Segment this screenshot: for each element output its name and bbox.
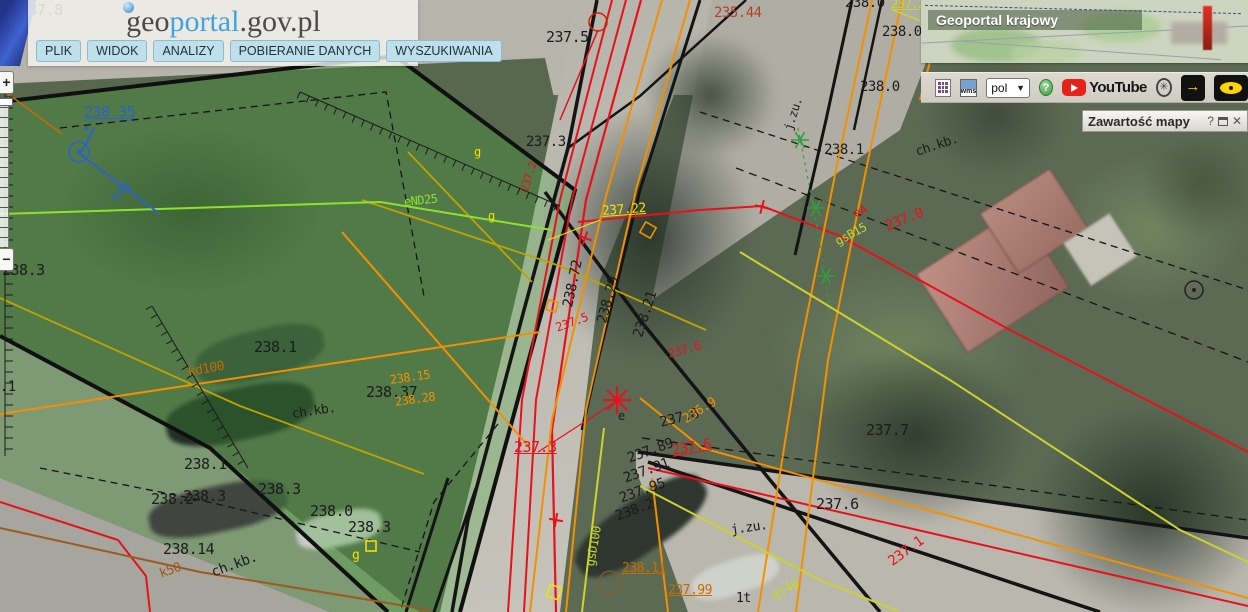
overview-minimap[interactable]: Geoportal krajowy bbox=[921, 0, 1248, 63]
menu-analizy[interactable]: ANALIZY bbox=[153, 40, 223, 62]
minimap-position-marker bbox=[1203, 6, 1212, 50]
menu-wyszukiwania[interactable]: WYSZUKIWANIA bbox=[386, 40, 501, 62]
map-label: 238.11 bbox=[622, 562, 666, 575]
pointer-tool-button[interactable]: → bbox=[1181, 75, 1205, 101]
map-label: 237.3 bbox=[526, 135, 566, 149]
zoom-in-button[interactable]: + bbox=[0, 71, 14, 94]
map-label: ch.kb. bbox=[291, 402, 336, 421]
map-label: 238.28 bbox=[394, 390, 436, 408]
map-label: ch.kb. bbox=[210, 550, 259, 579]
map-label: k50 bbox=[158, 561, 183, 581]
map-label: 237.5 bbox=[546, 30, 589, 45]
wms-button[interactable]: wms bbox=[960, 79, 978, 97]
minimap-title: Geoportal krajowy bbox=[928, 10, 1142, 30]
map-label: 1t bbox=[736, 592, 751, 605]
panel-help-icon[interactable]: ? bbox=[1207, 115, 1214, 127]
eye-pupil bbox=[1227, 84, 1235, 92]
geoportal-map-view: 237.8237.5235.44238.0237.27238.0238.0238… bbox=[0, 0, 1248, 612]
map-label: 238.3 bbox=[348, 520, 391, 535]
youtube-label: YouTube bbox=[1089, 79, 1147, 96]
map-label: ch.kb. bbox=[914, 133, 960, 159]
panel-maximize-icon[interactable] bbox=[1218, 117, 1228, 126]
map-label: 237.6 bbox=[671, 437, 712, 458]
language-select[interactable]: pol▼ bbox=[986, 78, 1030, 98]
map-label: 237.7 bbox=[866, 423, 909, 438]
logo-text-portal: portal bbox=[169, 5, 239, 38]
map-label: 235.44 bbox=[714, 6, 762, 20]
map-label: 238.0 bbox=[860, 80, 900, 94]
map-label: 238.29 bbox=[595, 275, 621, 325]
map-label: 237.3 bbox=[514, 440, 557, 455]
map-label: g bbox=[488, 210, 495, 222]
map-label: gsB15 bbox=[833, 221, 868, 247]
minimap-city bbox=[1171, 22, 1227, 44]
map-label: eA bbox=[852, 203, 869, 219]
map-label: 238.72 bbox=[561, 259, 585, 308]
map-label: 237.2 bbox=[519, 161, 539, 194]
menu-pobieranie-danych[interactable]: POBIERANIE DANYCH bbox=[230, 40, 381, 62]
map-label: 238.3 bbox=[183, 489, 226, 504]
map-label: kd100 bbox=[187, 360, 225, 379]
map-label: 237.6 bbox=[666, 340, 702, 360]
language-selected: pol bbox=[991, 81, 1007, 95]
map-label: gsD100 bbox=[584, 525, 603, 567]
map-label: 236.9 bbox=[681, 396, 719, 426]
map-label: 238.1 bbox=[254, 340, 297, 355]
map-label: 237.0 bbox=[883, 206, 925, 234]
menu-widok[interactable]: WIDOK bbox=[87, 40, 147, 62]
map-label: g bbox=[352, 549, 359, 562]
map-toolbar: wms pol▼ ? YouTube ✳ → bbox=[921, 72, 1248, 103]
main-menu: PLIKWIDOKANALIZYPOBIERANIE DANYCHWYSZUKI… bbox=[36, 40, 502, 62]
visibility-tool-button[interactable] bbox=[1214, 75, 1248, 101]
map-label: w40 bbox=[108, 180, 133, 203]
panel-title: Zawartość mapy bbox=[1088, 114, 1203, 129]
map-label: 238.3 bbox=[258, 482, 301, 497]
map-label: 238.1 bbox=[184, 457, 227, 472]
wheel-icon-button[interactable]: ✳ bbox=[1156, 78, 1172, 97]
map-label: 238.0 bbox=[310, 504, 353, 519]
map-label: 238.0 bbox=[845, 0, 885, 10]
menu-plik[interactable]: PLIK bbox=[36, 40, 81, 62]
youtube-play-icon bbox=[1062, 79, 1086, 96]
map-label: 237.1 bbox=[886, 534, 926, 569]
map-label: 237.6 bbox=[816, 497, 859, 512]
map-contents-panel-header[interactable]: Zawartość mapy ? ✕ bbox=[1082, 110, 1248, 132]
chevron-down-icon: ▼ bbox=[1016, 83, 1025, 93]
map-label: 238.1 bbox=[824, 143, 864, 157]
youtube-link[interactable]: YouTube bbox=[1062, 79, 1147, 96]
zoom-out-button[interactable]: − bbox=[0, 248, 14, 271]
map-label: 237.5 bbox=[554, 311, 590, 334]
map-label: j.zu. bbox=[730, 519, 768, 537]
map-label: 238.14 bbox=[163, 542, 214, 557]
header-panel: geoportal.gov.pl PLIKWIDOKANALIZYPOBIERA… bbox=[28, 0, 418, 66]
map-label: gs40 bbox=[769, 578, 801, 603]
map-label: 238.21 bbox=[631, 290, 659, 340]
geoportal-logo[interactable]: geoportal.gov.pl bbox=[28, 2, 418, 39]
map-label: 237.99 bbox=[668, 584, 712, 597]
map-label: 238.35 bbox=[84, 105, 135, 120]
logo-text-suffix: .gov.pl bbox=[239, 5, 320, 38]
map-label: g bbox=[474, 146, 481, 158]
panel-close-icon[interactable]: ✕ bbox=[1232, 115, 1242, 127]
minimap-terrain bbox=[1011, 40, 1081, 63]
map-label: j.zu. bbox=[782, 96, 804, 132]
map-label: 238.1 bbox=[0, 380, 16, 394]
map-label: 238.0 bbox=[882, 25, 922, 39]
map-label: 237.22 bbox=[602, 202, 647, 218]
map-label: eND25 bbox=[403, 193, 438, 208]
zoom-slider-handle[interactable] bbox=[0, 98, 13, 106]
layer-grid-button[interactable] bbox=[935, 79, 951, 97]
map-label: e bbox=[618, 410, 625, 422]
zoom-slider-track[interactable] bbox=[0, 97, 9, 247]
help-button[interactable]: ? bbox=[1039, 79, 1053, 96]
map-label: 238.15 bbox=[389, 368, 431, 386]
